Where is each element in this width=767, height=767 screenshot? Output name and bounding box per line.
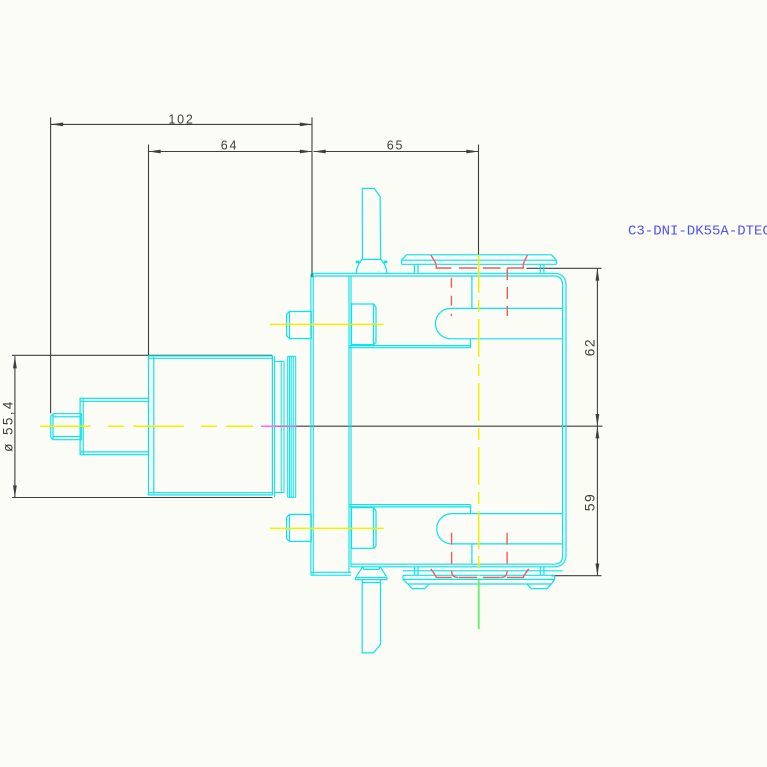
svg-text:65: 65 bbox=[387, 139, 405, 153]
svg-text:59: 59 bbox=[582, 493, 598, 512]
svg-text:C3-DNI-DK55A-DTEC: C3-DNI-DK55A-DTEC bbox=[628, 224, 767, 240]
svg-text:62: 62 bbox=[582, 338, 598, 357]
svg-text:102: 102 bbox=[168, 112, 194, 126]
svg-text:ø 55,4: ø 55,4 bbox=[1, 399, 16, 452]
svg-text:64: 64 bbox=[221, 139, 239, 153]
